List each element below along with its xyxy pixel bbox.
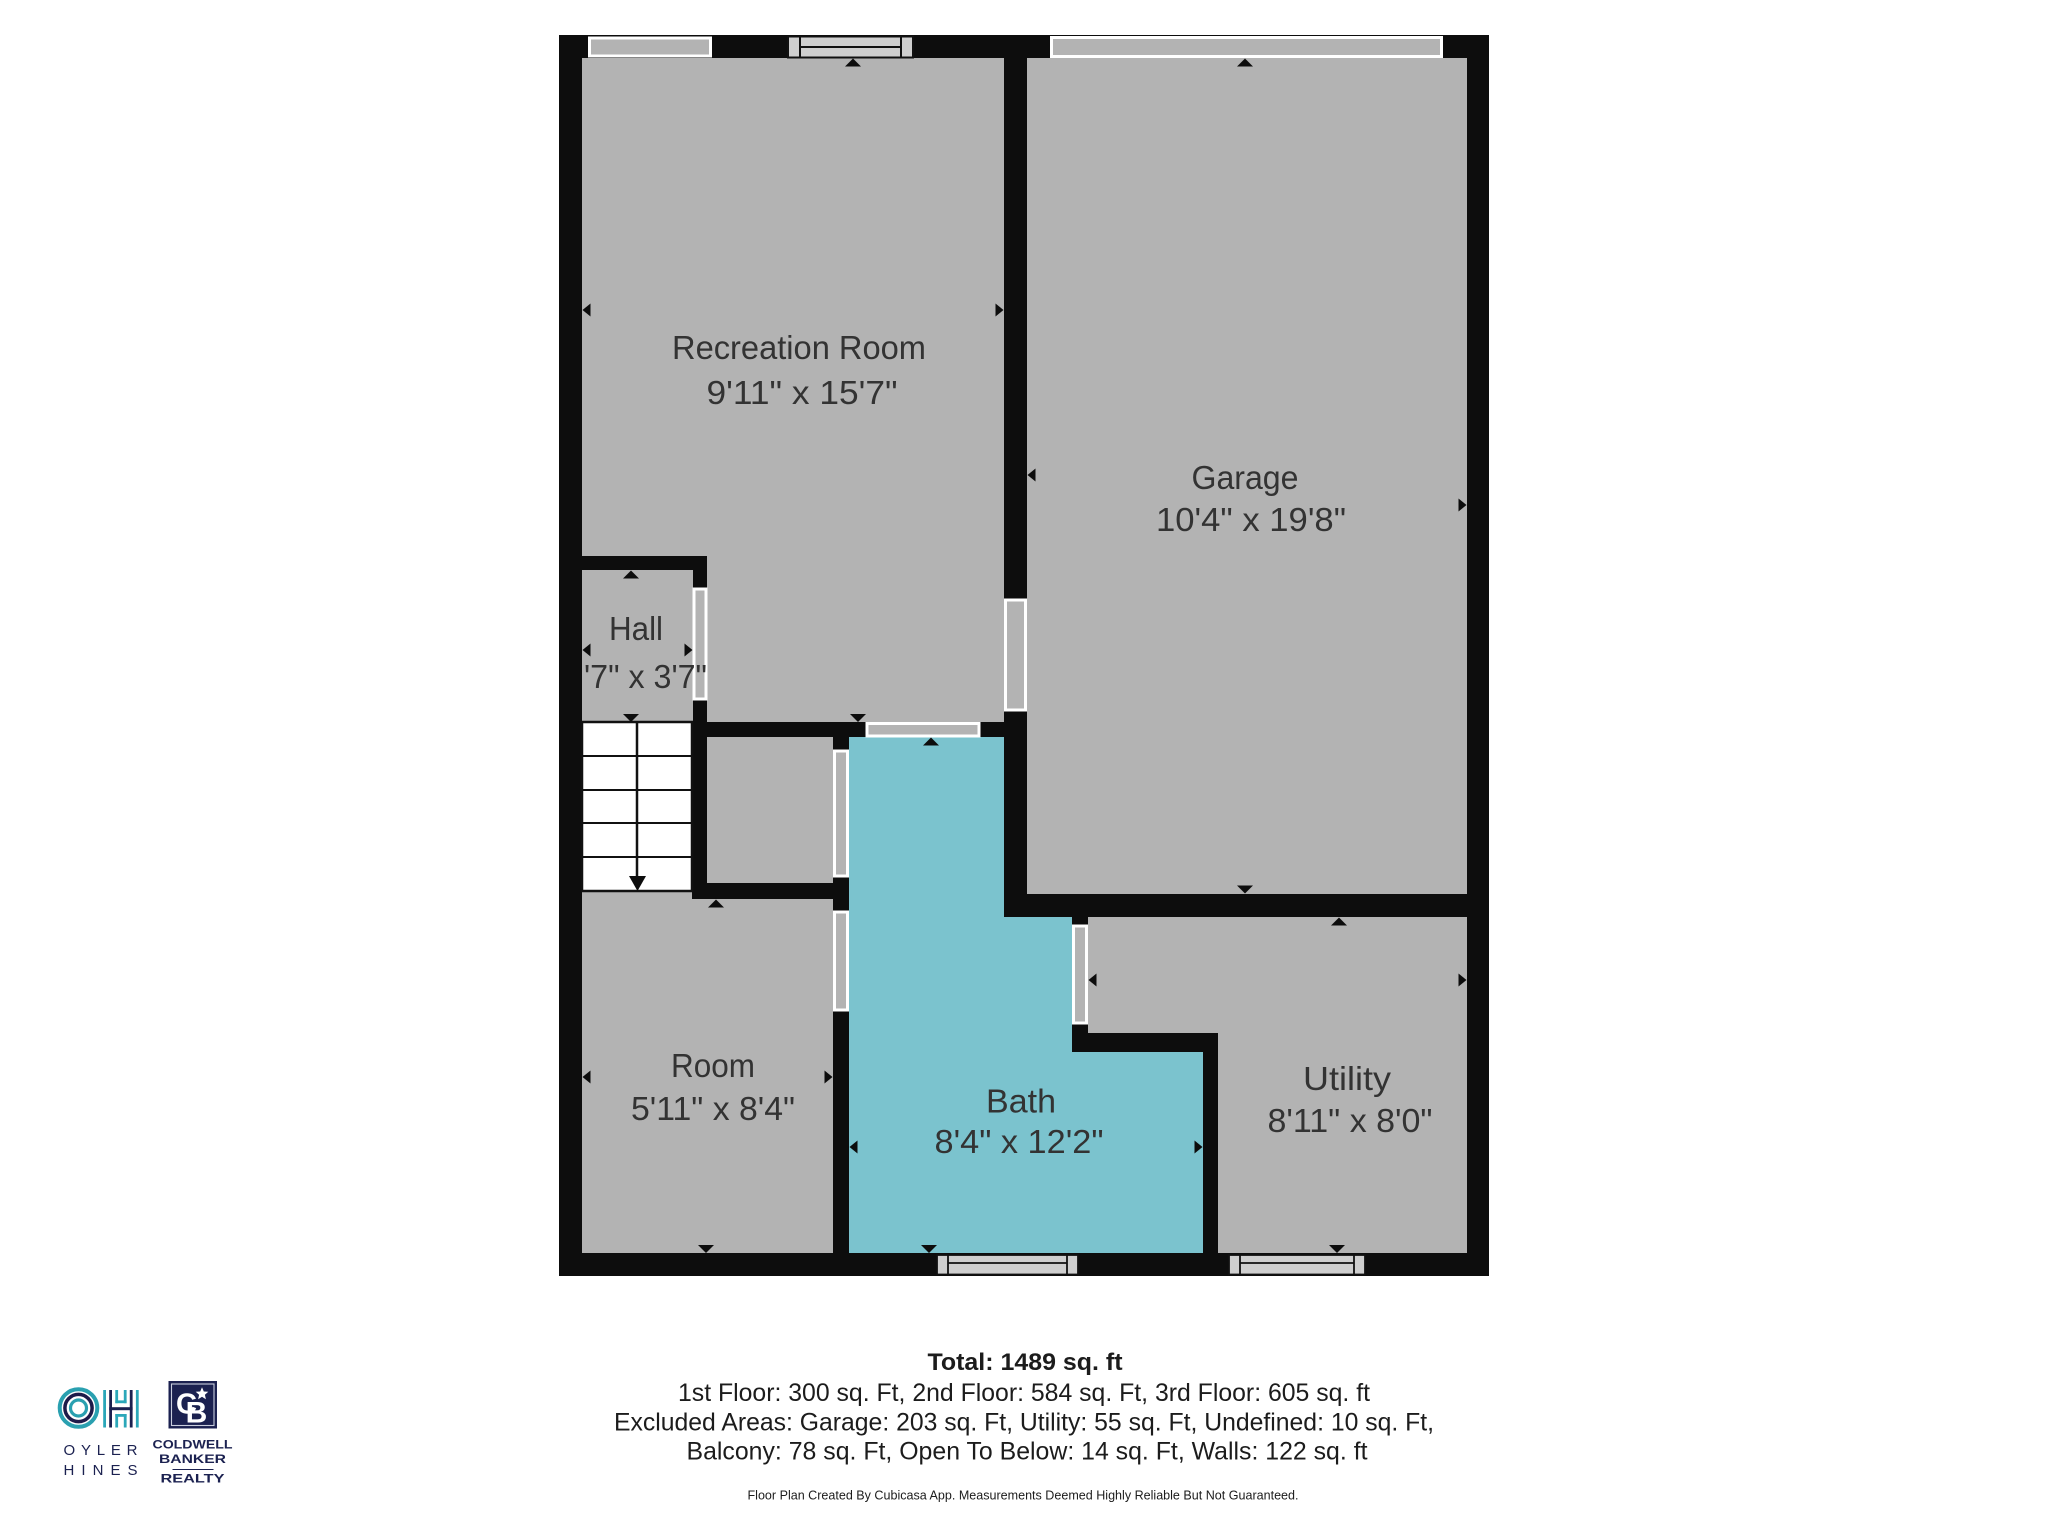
svg-text:8'4" x 12'2": 8'4" x 12'2" bbox=[935, 1123, 1104, 1160]
svg-text:Total: 1489 sq. ft: Total: 1489 sq. ft bbox=[928, 1349, 1123, 1376]
svg-text:B: B bbox=[186, 1397, 208, 1430]
svg-text:Garage: Garage bbox=[1192, 459, 1299, 496]
svg-text:9'11" x 15'7": 9'11" x 15'7" bbox=[707, 374, 898, 411]
svg-text:OYLER: OYLER bbox=[64, 1442, 138, 1459]
svg-text:'7" x 3'7": '7" x 3'7" bbox=[584, 658, 707, 695]
svg-text:Balcony: 78 sq. Ft, Open To Be: Balcony: 78 sq. Ft, Open To Below: 14 sq… bbox=[687, 1438, 1368, 1466]
svg-text:Hall: Hall bbox=[609, 610, 663, 647]
svg-text:Floor Plan Created By Cubicasa: Floor Plan Created By Cubicasa App. Meas… bbox=[748, 1488, 1299, 1503]
svg-text:Recreation Room: Recreation Room bbox=[672, 329, 926, 366]
svg-text:5'11" x 8'4": 5'11" x 8'4" bbox=[631, 1090, 795, 1127]
svg-text:1st Floor: 300 sq. Ft, 2nd Flo: 1st Floor: 300 sq. Ft, 2nd Floor: 584 sq… bbox=[678, 1379, 1370, 1407]
svg-text:COLDWELL: COLDWELL bbox=[153, 1438, 233, 1452]
svg-text:Bath: Bath bbox=[986, 1083, 1056, 1120]
svg-text:10'4" x 19'8": 10'4" x 19'8" bbox=[1156, 501, 1346, 538]
svg-text:Excluded Areas: Garage: 203 sq: Excluded Areas: Garage: 203 sq. Ft, Util… bbox=[614, 1409, 1434, 1437]
svg-text:8'11" x 8'0": 8'11" x 8'0" bbox=[1268, 1102, 1433, 1139]
svg-text:REALTY: REALTY bbox=[161, 1474, 225, 1486]
svg-text:Room: Room bbox=[671, 1047, 755, 1084]
svg-text:Utility: Utility bbox=[1303, 1060, 1392, 1097]
svg-text:BANKER: BANKER bbox=[159, 1452, 226, 1466]
